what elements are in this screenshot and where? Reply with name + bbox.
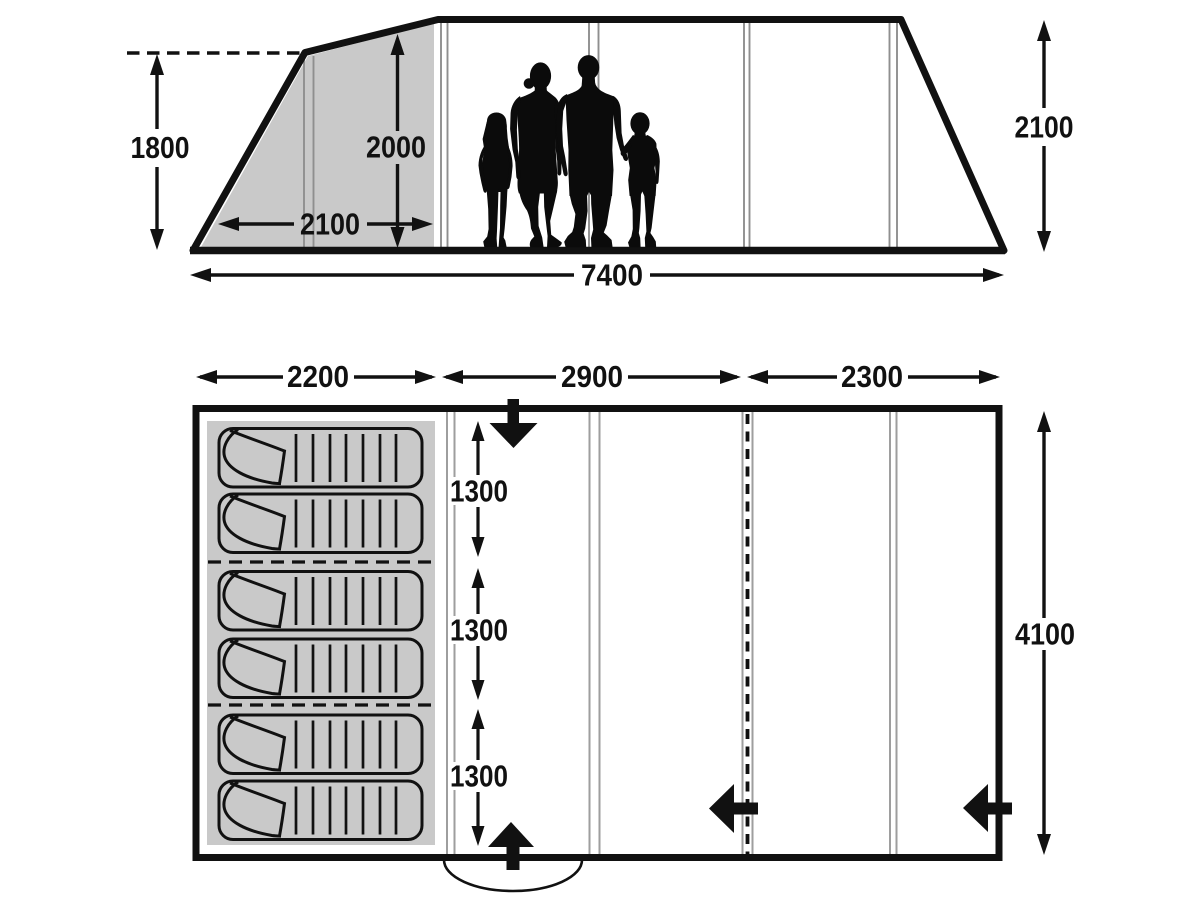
svg-text:2000: 2000 — [366, 130, 426, 165]
svg-text:2900: 2900 — [561, 359, 623, 394]
svg-text:4100: 4100 — [1015, 617, 1075, 652]
svg-text:2100: 2100 — [1015, 110, 1074, 145]
svg-text:1800: 1800 — [131, 130, 190, 165]
svg-text:2100: 2100 — [300, 207, 360, 242]
svg-text:2200: 2200 — [287, 359, 349, 394]
svg-text:1300: 1300 — [450, 474, 508, 509]
svg-text:2300: 2300 — [841, 359, 903, 394]
svg-text:1300: 1300 — [450, 613, 508, 648]
svg-text:1300: 1300 — [450, 759, 508, 794]
svg-text:7400: 7400 — [581, 258, 643, 293]
